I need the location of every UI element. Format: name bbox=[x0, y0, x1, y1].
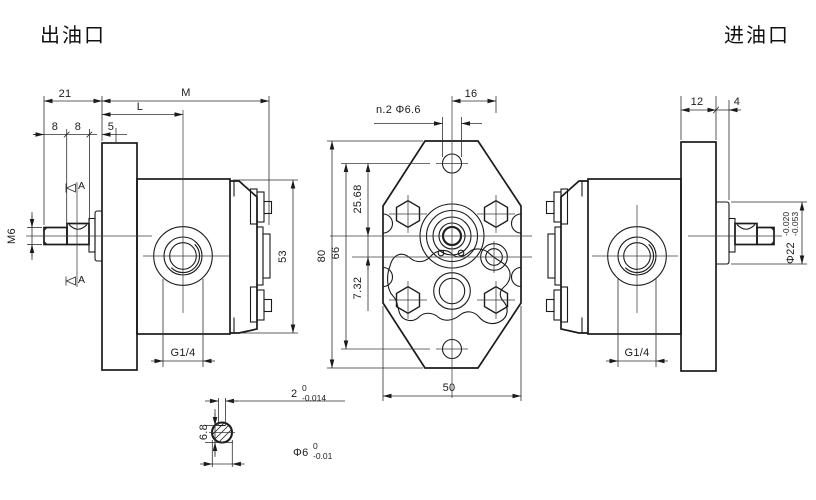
right-view-outline bbox=[561, 142, 774, 371]
right-side-view: 12 4 Φ22 -0.020 -0.053 G1/4 bbox=[547, 96, 808, 371]
left-view-rear-bolts bbox=[251, 189, 272, 322]
pump-engineering-drawing: 出油口 进油口 bbox=[0, 0, 816, 500]
dim-66: 66 bbox=[330, 247, 342, 260]
dim-5: 5 bbox=[108, 121, 114, 133]
right-view-rear-bolts bbox=[547, 189, 568, 322]
dim-8b: 8 bbox=[75, 121, 81, 133]
dim-g14-left: G1/4 bbox=[170, 347, 195, 359]
right-view-dimensions: 12 4 Φ22 -0.020 -0.053 G1/4 bbox=[606, 96, 807, 367]
dim-25-68: 25.68 bbox=[352, 184, 364, 213]
dim-4: 4 bbox=[734, 96, 740, 108]
right-view-centerlines bbox=[592, 205, 782, 313]
dim-shaft-dia-tol-lower: -0.01 bbox=[313, 451, 333, 461]
shaft-dia-callout: Φ22 -0.020 -0.053 bbox=[781, 212, 800, 264]
dim-key-width-tol-lower: -0.014 bbox=[302, 393, 326, 403]
dim-phi22: Φ22 bbox=[785, 242, 797, 264]
dim-21: 21 bbox=[59, 88, 72, 100]
dim-16: 16 bbox=[465, 88, 478, 100]
dim-g14-right: G1/4 bbox=[624, 347, 649, 359]
dim-shaft-dia-tol-upper: 0 bbox=[313, 441, 318, 451]
left-view-centerlines bbox=[26, 110, 229, 313]
front-view: 80 66 25.68 7.32 16 n.2 Φ6.6 50 bbox=[316, 88, 532, 401]
dim-L: L bbox=[137, 101, 143, 113]
holes-callout: n.2 Φ6.6 bbox=[376, 104, 421, 116]
dim-shaft-dia: Φ6 bbox=[293, 447, 309, 459]
left-view-outline bbox=[44, 143, 257, 370]
dim-m6: M6 bbox=[6, 228, 18, 244]
dim-key-height: 6.8 bbox=[198, 424, 210, 440]
drawing-canvas: 出油口 进油口 bbox=[0, 0, 816, 500]
dim-M: M bbox=[181, 87, 190, 99]
outlet-port-label: 出油口 bbox=[40, 24, 106, 47]
left-side-view: A A 21 M L 8 8 5 bbox=[6, 87, 298, 370]
dim-50: 50 bbox=[443, 382, 456, 394]
inlet-port-label: 进油口 bbox=[724, 24, 790, 47]
section-a-label-bottom: A bbox=[78, 274, 85, 286]
dim-12: 12 bbox=[691, 96, 704, 108]
section-a-label-top: A bbox=[78, 180, 85, 192]
dim-key-width: 2 bbox=[291, 388, 297, 400]
dim-8a: 8 bbox=[52, 121, 58, 133]
shaft-section-detail: 2 0 -0.014 6.8 Φ6 0 -0.01 bbox=[198, 383, 345, 467]
section-a-markers: A A bbox=[66, 180, 85, 286]
dim-53: 53 bbox=[277, 250, 289, 263]
dim-80: 80 bbox=[316, 250, 328, 263]
dim-phi22-tol-lower: -0.053 bbox=[790, 212, 800, 236]
dim-7-32: 7.32 bbox=[352, 277, 364, 300]
dim-key-width-tol-upper: 0 bbox=[302, 383, 307, 393]
